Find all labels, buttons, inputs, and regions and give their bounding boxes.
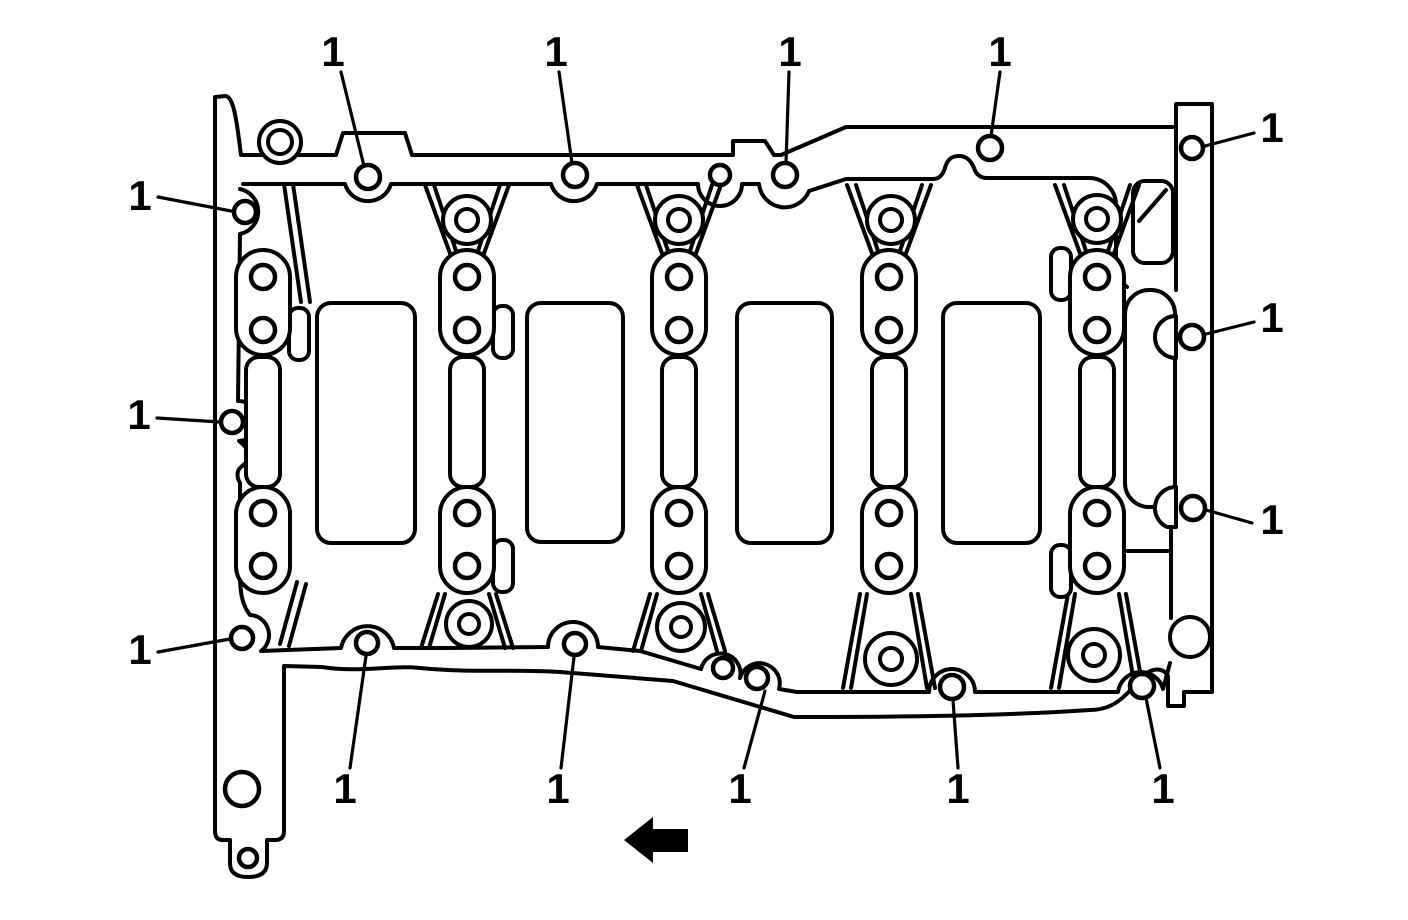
callout-label: 1 (988, 28, 1011, 75)
callout-label: 1 (1151, 765, 1174, 812)
bulkhead-bolt-hole (455, 554, 479, 578)
callout-right-1: 1 (1205, 104, 1284, 151)
callout-label: 1 (1260, 496, 1283, 543)
oil-pan-bolt-hole-bottom-3 (746, 667, 768, 689)
callout-leader-line (350, 656, 366, 768)
front-direction-arrow (624, 817, 688, 863)
oil-pan-bolt-hole-bottom-4 (940, 675, 964, 699)
rear-boss-circle (1170, 617, 1210, 657)
bulkhead-bolt-hole (667, 265, 691, 289)
callout-label: 1 (544, 28, 567, 75)
leg-tab-hole (239, 849, 257, 867)
callout-bottom-3: 1 (728, 691, 765, 812)
callout-label: 1 (321, 28, 344, 75)
bulkhead-bolt-hole (455, 265, 479, 289)
bulkhead-bolt-hole (455, 501, 479, 525)
callout-label: 1 (333, 765, 356, 812)
callout-label: 1 (1260, 294, 1283, 341)
bulkhead-strip (246, 357, 280, 487)
callout-leader-line (157, 418, 220, 422)
bulkhead-strip (662, 357, 696, 487)
callout-label: 1 (946, 765, 969, 812)
oil-pan-bolt-hole (713, 658, 733, 678)
oil-pan-bolt-hole-right-1 (1181, 137, 1203, 159)
bulkhead-strip (1080, 357, 1114, 487)
bulkhead-bottom-boss (1068, 629, 1120, 681)
callout-label: 1 (128, 626, 151, 673)
callout-label: 1 (1260, 104, 1283, 151)
callout-label: 1 (778, 28, 801, 75)
leg-large-hole (225, 772, 259, 806)
callout-right-3: 1 (1206, 496, 1284, 543)
oil-pan-bolt-hole-left-3 (231, 627, 253, 649)
bulkhead-bottom-boss (865, 633, 917, 685)
bulkhead-bolt-hole (667, 554, 691, 578)
bulkhead-bolt-hole (667, 318, 691, 342)
oil-pan-bolt-hole (710, 165, 730, 185)
front-ear-boss-outer (259, 121, 301, 163)
bulkhead-strip (872, 357, 906, 487)
oil-pan-bolt-hole-top-1 (356, 165, 380, 189)
bulkhead-bolt-hole (1085, 554, 1109, 578)
block-outer-profile (215, 96, 1212, 877)
callout-label: 1 (128, 172, 151, 219)
bulkhead-strip (450, 357, 484, 487)
callout-leader-line (1146, 698, 1160, 768)
callout-right-2: 1 (1206, 294, 1284, 341)
oil-pan-bolt-hole-bottom-5 (1130, 674, 1154, 698)
callout-top-4: 1 (988, 28, 1011, 136)
oil-pan-bolt-hole-left-1 (234, 201, 256, 223)
oil-pan-bolt-hole-bottom-1 (356, 632, 378, 654)
bulkhead-bolt-hole (667, 501, 691, 525)
callout-label: 1 (127, 391, 150, 438)
bulkhead-bolt-hole (251, 554, 275, 578)
bulkhead-bolt-hole (1085, 501, 1109, 525)
oil-pan-bolt-hole-top-3 (773, 163, 797, 187)
oil-pan-bolt-hole-right-2 (1180, 325, 1204, 349)
bulkhead-bolt-hole (877, 265, 901, 289)
bulkhead-top-boss (443, 196, 491, 244)
oil-pan-bolt-hole-bottom-2 (564, 633, 586, 655)
callout-leader-line (786, 72, 789, 163)
engine-block-diagram: 111111111111111 (0, 0, 1408, 920)
bulkhead-top-boss (1073, 195, 1121, 243)
bulkhead-bottom-boss (446, 601, 492, 647)
bulkhead-bottom-boss (657, 603, 705, 651)
bulkhead-bolt-hole (877, 501, 901, 525)
oil-pan-bolt-hole-right-3 (1181, 496, 1205, 520)
bulkhead-bolt-hole (877, 554, 901, 578)
bulkhead-bolt-hole (455, 318, 479, 342)
bulkhead-bolt-hole (1085, 265, 1109, 289)
block-outline (215, 96, 1212, 877)
oil-pan-bolt-hole-left-2 (221, 411, 243, 433)
callout-leader-line (559, 72, 572, 163)
callout-label: 1 (546, 765, 569, 812)
callout-bottom-1: 1 (333, 656, 366, 812)
bulkhead-bolt-hole (1085, 318, 1109, 342)
callout-bottom-5: 1 (1146, 698, 1175, 812)
bulkhead-top-boss (867, 196, 915, 244)
bulkhead-top-boss (655, 196, 703, 244)
callout-label: 1 (728, 765, 751, 812)
figure-canvas: 111111111111111 (0, 0, 1408, 920)
bulkhead-bolt-hole (251, 318, 275, 342)
bulkhead-bolt-hole (251, 501, 275, 525)
bulkhead-bolt-hole (251, 265, 275, 289)
oil-pan-bolt-hole-top-2 (563, 163, 587, 187)
bulkhead-bolt-hole (877, 318, 901, 342)
callout-bottom-2: 1 (546, 657, 574, 812)
callout-top-2: 1 (544, 28, 572, 163)
callout-left-2: 1 (127, 391, 220, 438)
oil-pan-bolt-hole-top-4 (978, 136, 1002, 160)
callout-top-3: 1 (778, 28, 801, 163)
